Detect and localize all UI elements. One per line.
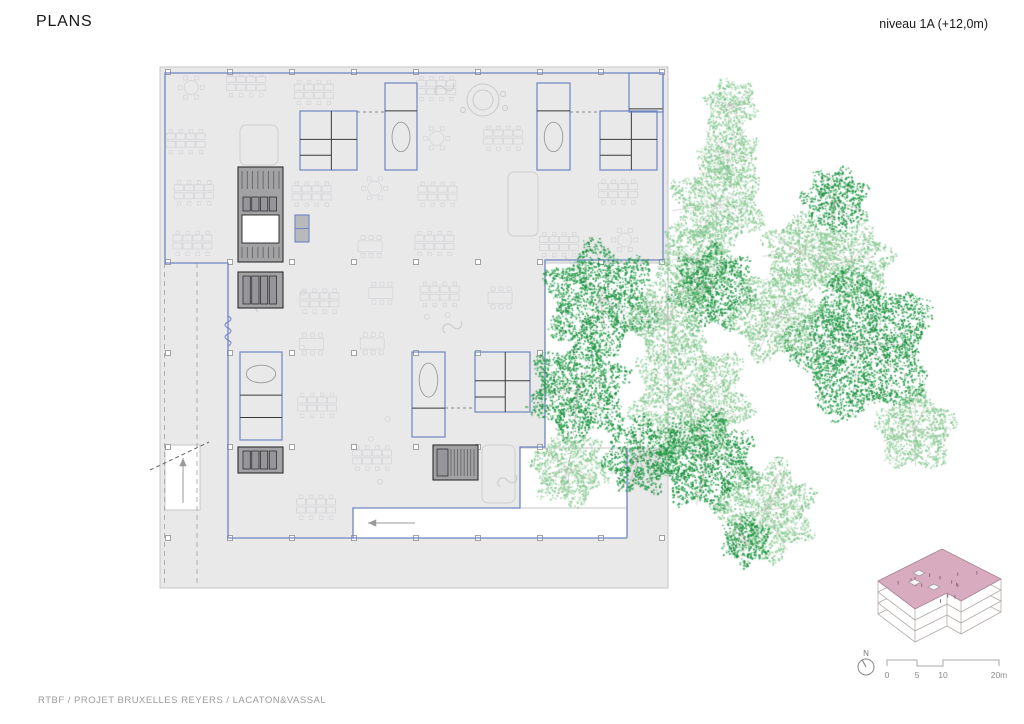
svg-text:20m: 20m [991, 670, 1008, 680]
page-title: PLANS [36, 13, 92, 31]
footer-credit: RTBF / PROJET BRUXELLES REYERS / LACATON… [38, 695, 326, 706]
floor-plan-drawing: N051020m [0, 0, 1024, 724]
ground-slab [160, 67, 668, 588]
lockers [295, 215, 309, 242]
scale-bar: 051020m [885, 660, 1008, 680]
north-arrow: N [858, 649, 874, 675]
svg-text:5: 5 [915, 670, 920, 680]
svg-text:10: 10 [938, 670, 948, 680]
svg-text:0: 0 [885, 670, 890, 680]
svg-text:N: N [863, 649, 869, 658]
sheet: N051020m PLANS niveau 1A (+12,0m) RTBF /… [0, 0, 1024, 724]
level-label: niveau 1A (+12,0m) [879, 17, 988, 31]
axonometric-inset [878, 549, 1001, 642]
